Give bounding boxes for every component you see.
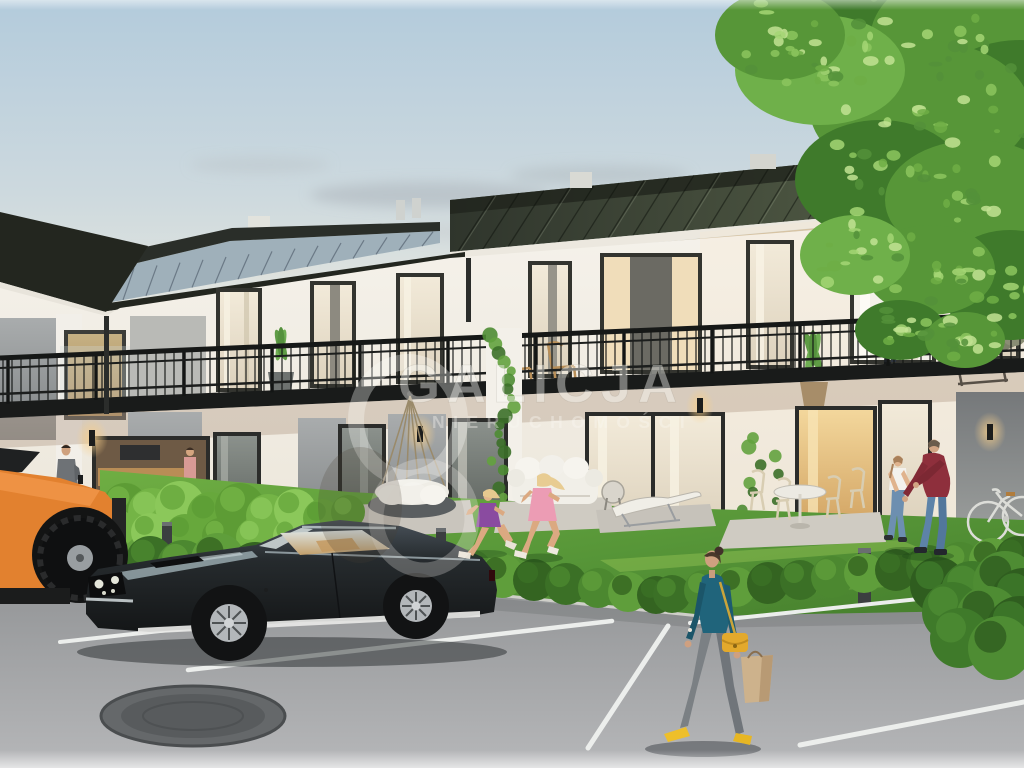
- watermark-brand: GALICJA: [398, 354, 684, 414]
- watermark-logo-blob: [318, 447, 402, 563]
- front-wheel: [191, 585, 267, 661]
- bottom-vignette: [0, 750, 1024, 768]
- wall-lamp: [974, 412, 1006, 452]
- phone: [78, 475, 83, 484]
- headlight: [111, 576, 119, 584]
- architectural-render: GALICJA NIERUCHOMOŚCI: [0, 0, 1024, 768]
- headlight: [95, 580, 104, 589]
- taillight: [489, 570, 495, 581]
- downspout: [466, 258, 471, 322]
- upper-window: [310, 281, 356, 388]
- downspout: [104, 316, 109, 414]
- manhole-cover: [101, 686, 285, 746]
- wall-lamp: [76, 418, 108, 458]
- render-canvas: GALICJA NIERUCHOMOŚCI: [0, 0, 1024, 768]
- top-vignette: [0, 0, 1024, 10]
- warm-lit-door: [795, 406, 877, 528]
- upper-window: [746, 240, 794, 369]
- watermark-subtitle: NIERUCHOMOŚCI: [432, 411, 693, 432]
- rear-wheel: [383, 573, 449, 639]
